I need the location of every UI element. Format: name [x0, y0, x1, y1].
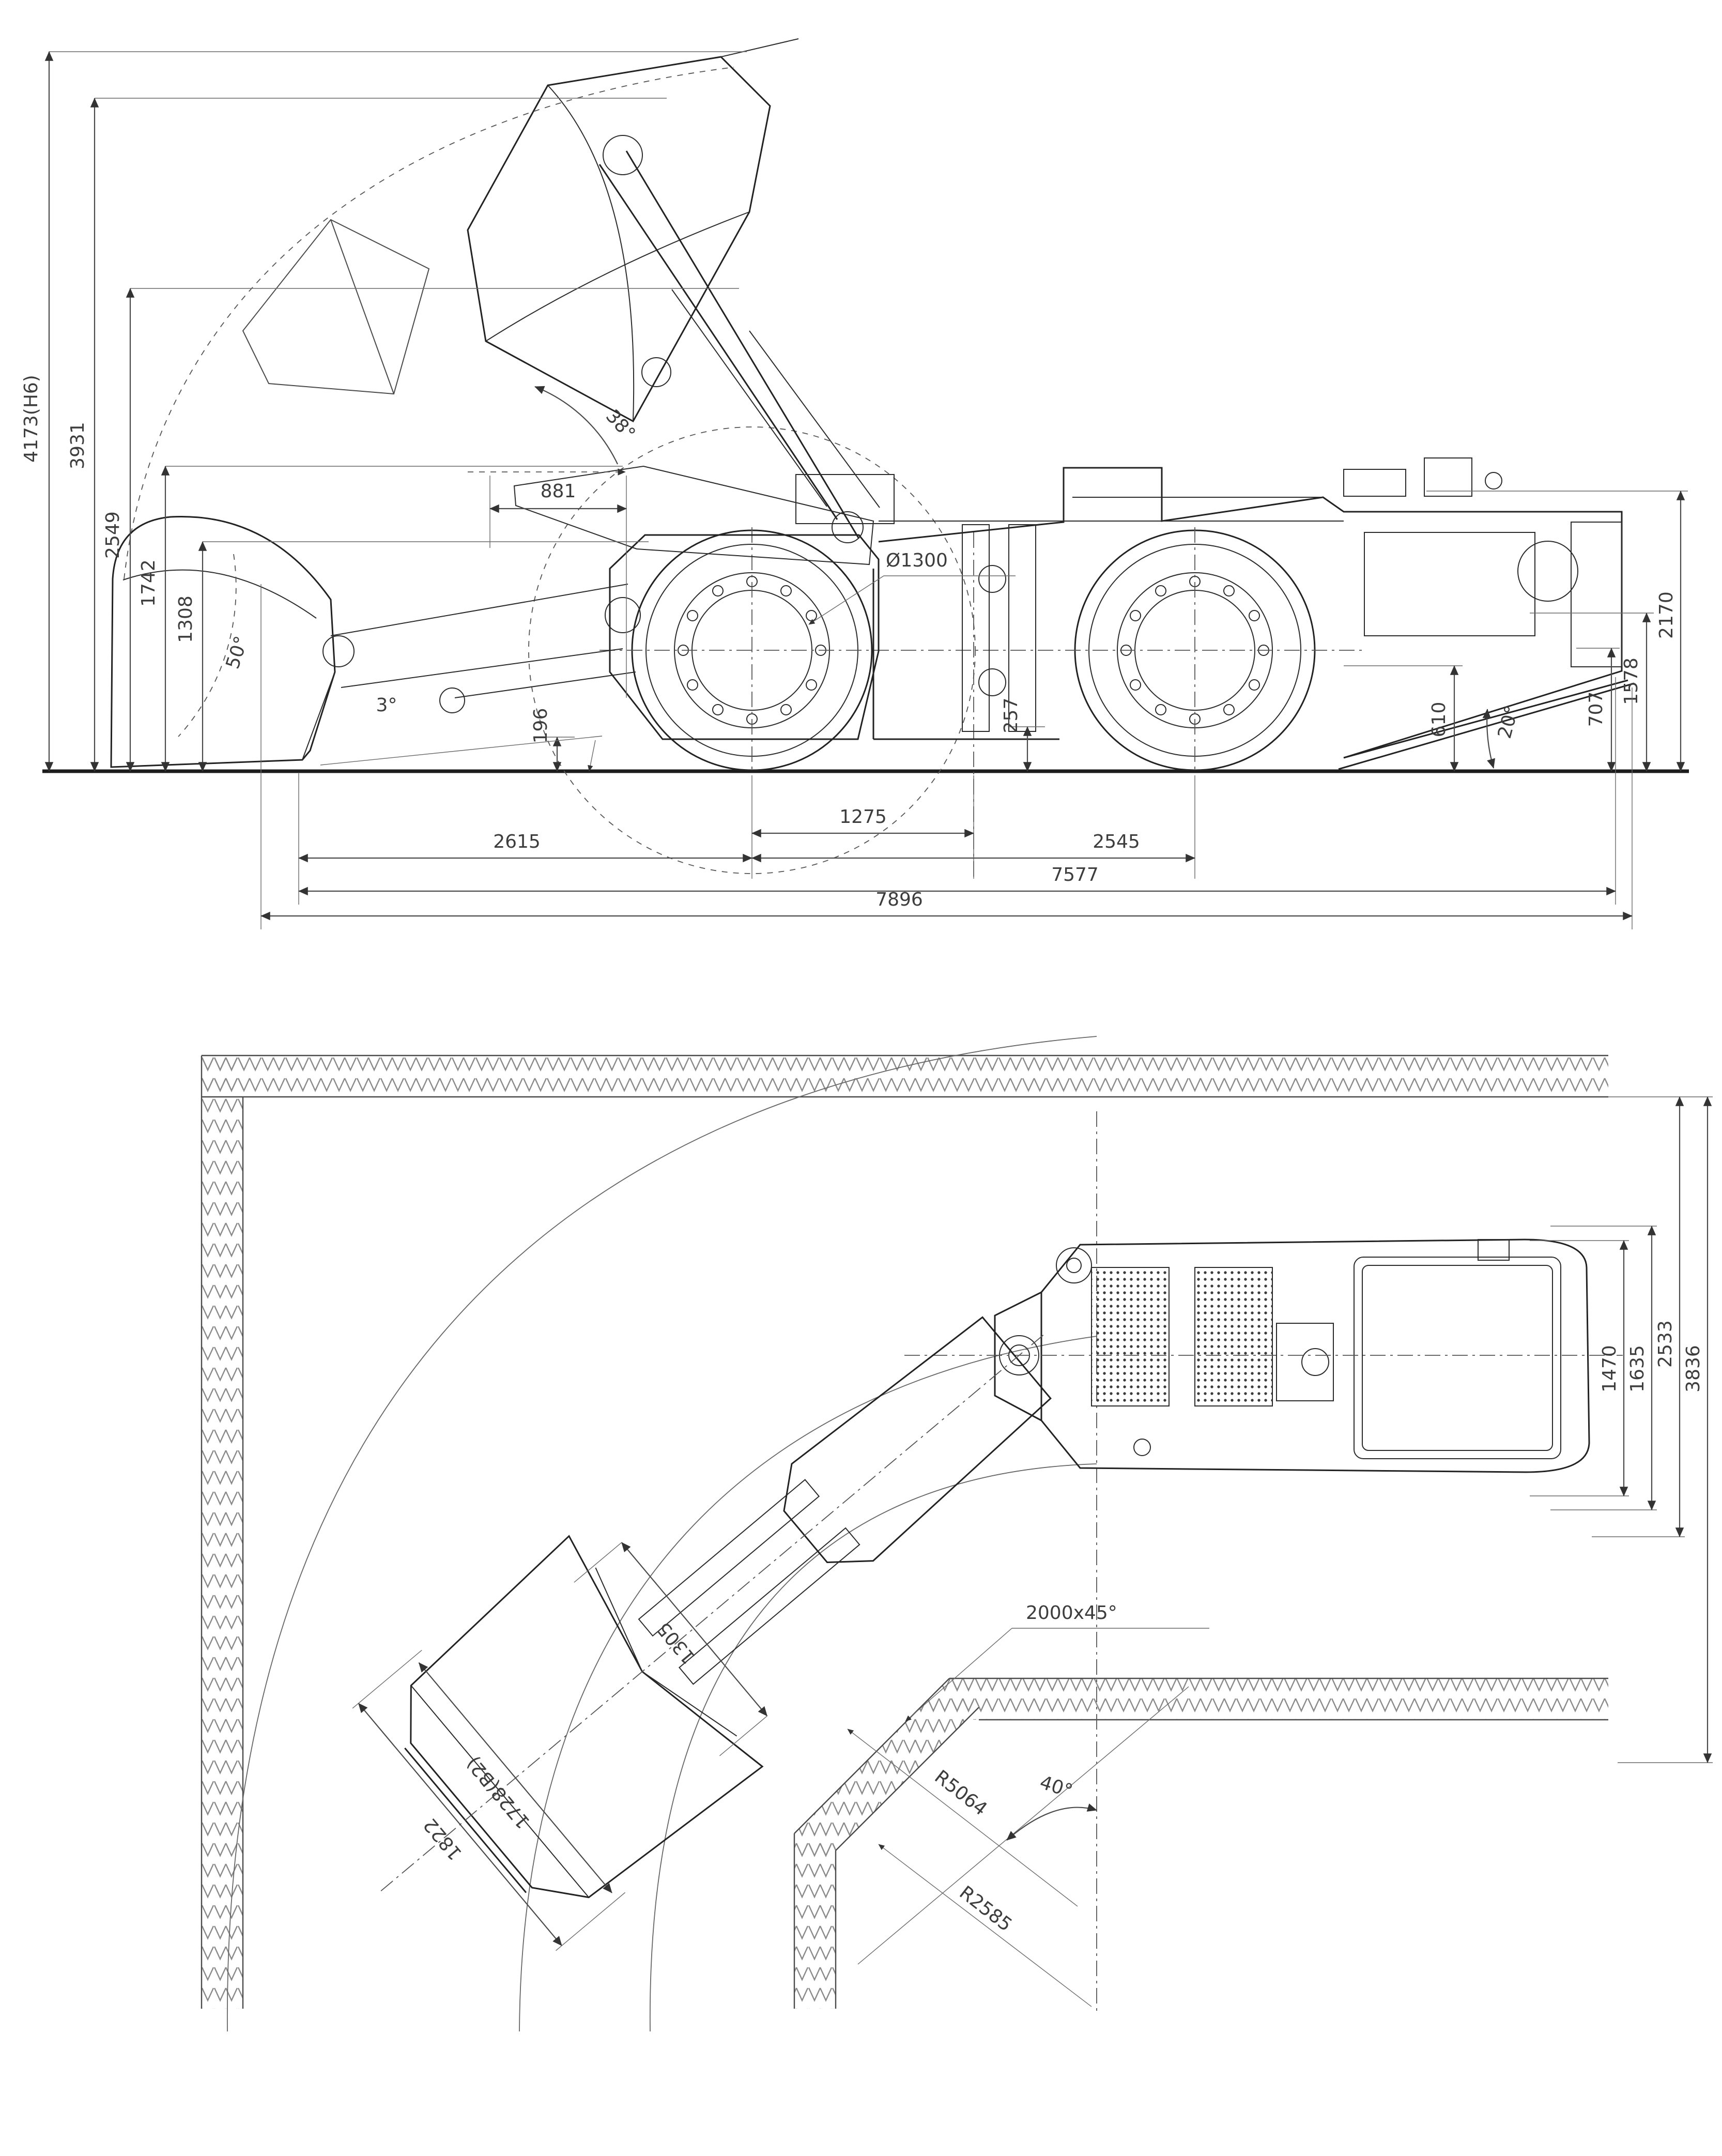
dim-wheelbase: 2545	[1093, 831, 1140, 852]
dim-dump-height: 3931	[67, 422, 88, 469]
dim-pin-height: 1742	[138, 559, 159, 607]
lhd-dimensional-drawing: 4173(H6) 3931 2549 1742 1308 2170 1578 7…	[0, 0, 1722, 2156]
dim-length-total: 7896	[875, 889, 923, 910]
dim-max-lift-height: 4173(H6)	[21, 375, 42, 463]
dim-axle-line-height: 1308	[175, 595, 196, 643]
dim-ramp-height: 610	[1428, 702, 1450, 738]
inner-vertical-wall-hatch	[794, 1833, 836, 2009]
inner-wall-hatch	[949, 1678, 1608, 1720]
dim-overhang: 881	[541, 481, 576, 502]
dim-front-clearance: 196	[530, 708, 551, 744]
dim-front-length: 2615	[493, 831, 541, 852]
dim-width-body: 1635	[1627, 1345, 1648, 1393]
dim-deck-height: 707	[1586, 692, 1607, 727]
left-wall-hatch	[202, 1056, 243, 2009]
dim-width-inner: 1470	[1599, 1345, 1620, 1393]
dim-corner-chamfer: 2000x45°	[1026, 1602, 1117, 1624]
dim-machine-height: 2170	[1656, 591, 1677, 639]
dim-length-body: 7577	[1051, 864, 1099, 885]
dim-width-swing: 2533	[1655, 1320, 1676, 1368]
dim-rear-height: 1578	[1621, 657, 1642, 705]
top-wall-hatch	[202, 1056, 1608, 1097]
dim-mid-clearance: 257	[1001, 698, 1022, 733]
dim-boom-height: 2549	[102, 511, 124, 559]
dim-tire-diameter: Ø1300	[886, 550, 948, 571]
drawing-sheet: 4173(H6) 3931 2549 1742 1308 2170 1578 7…	[0, 0, 1722, 2156]
dim-width-tunnel: 3836	[1683, 1345, 1704, 1393]
dim-blade-angle: 3°	[376, 695, 397, 716]
dim-axle-to-hinge: 1275	[839, 806, 887, 828]
